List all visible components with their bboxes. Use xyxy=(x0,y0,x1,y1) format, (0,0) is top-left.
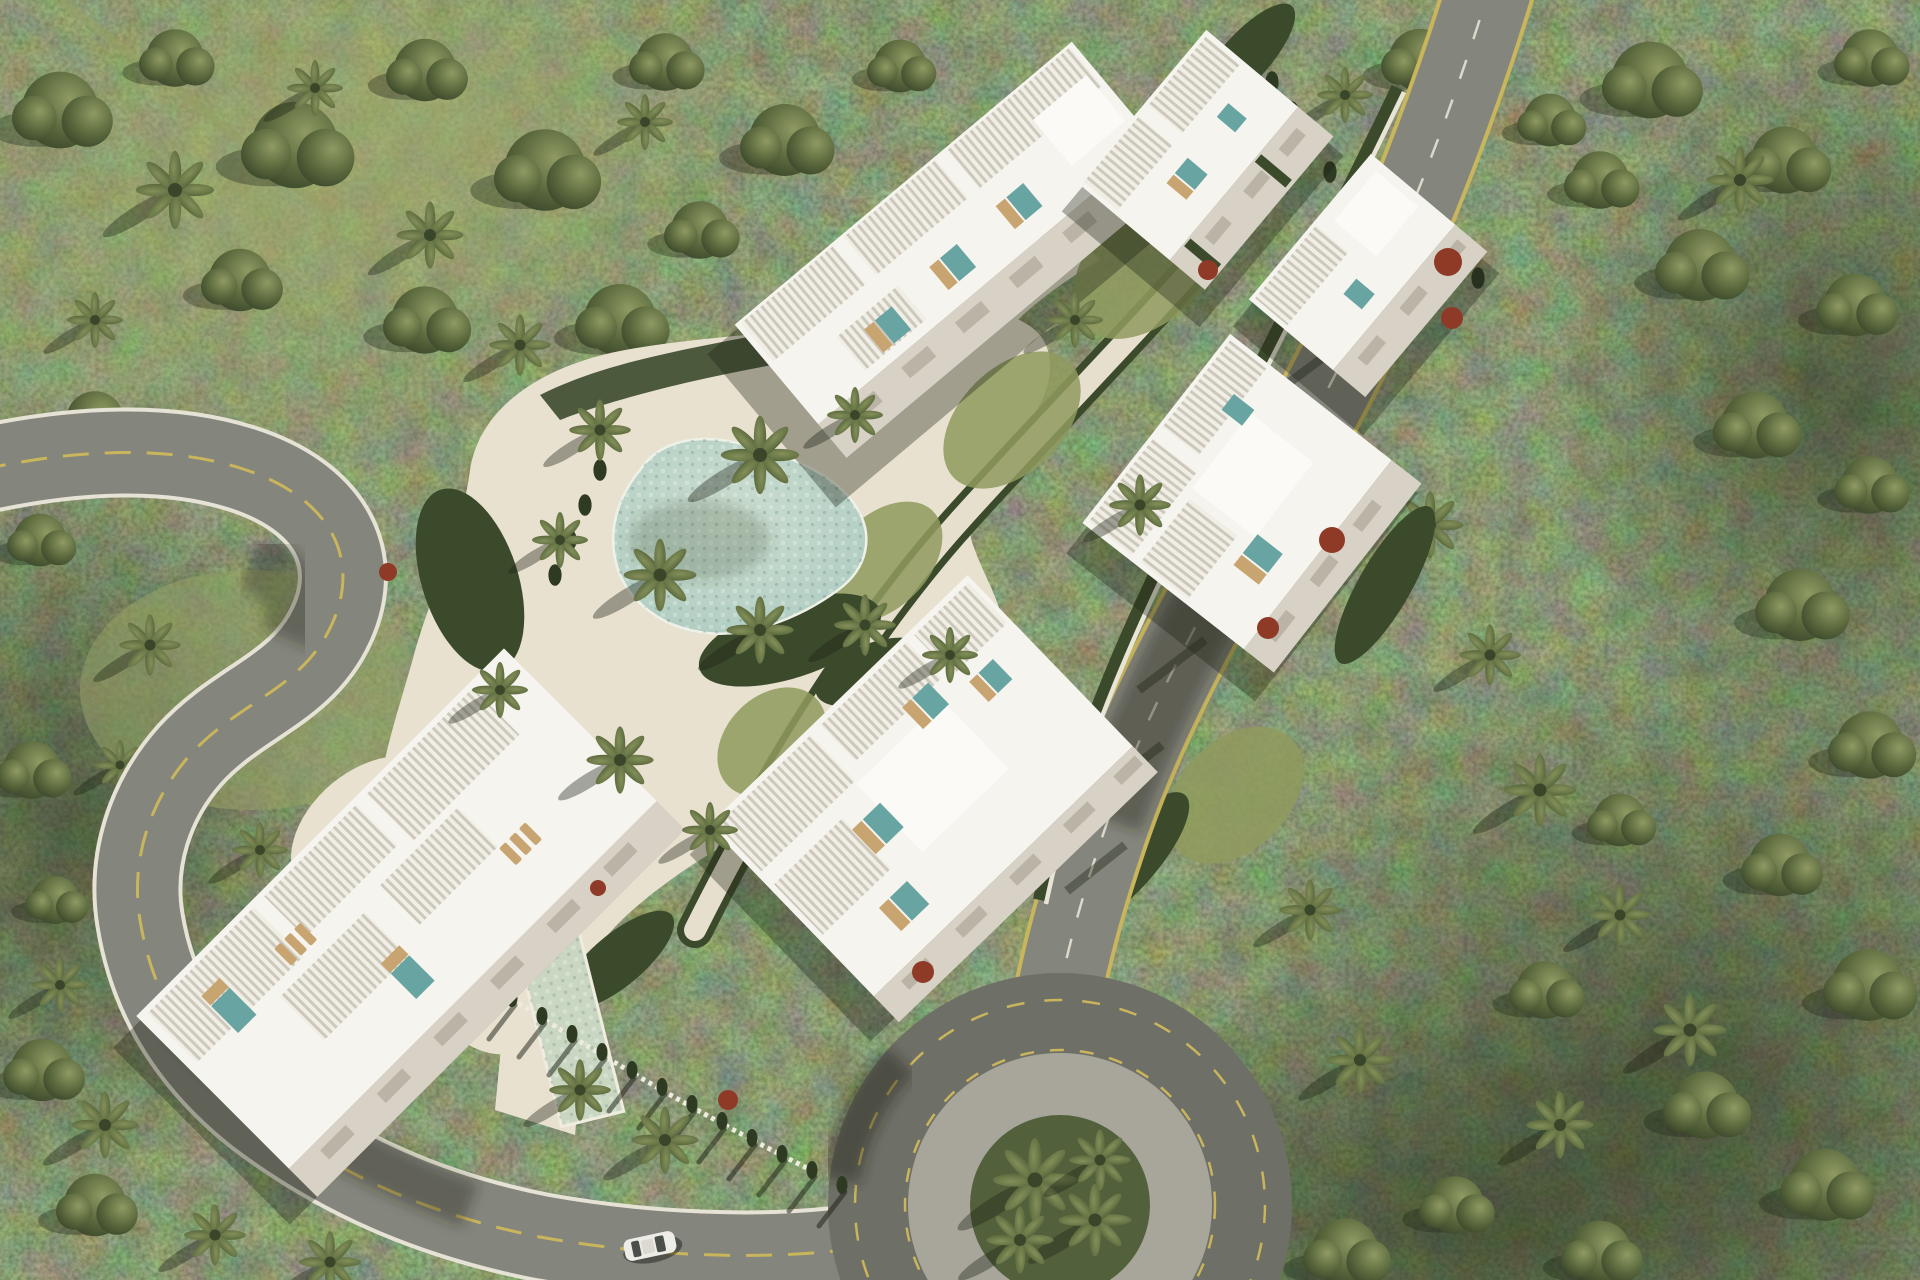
aerial-render xyxy=(0,0,1920,1280)
